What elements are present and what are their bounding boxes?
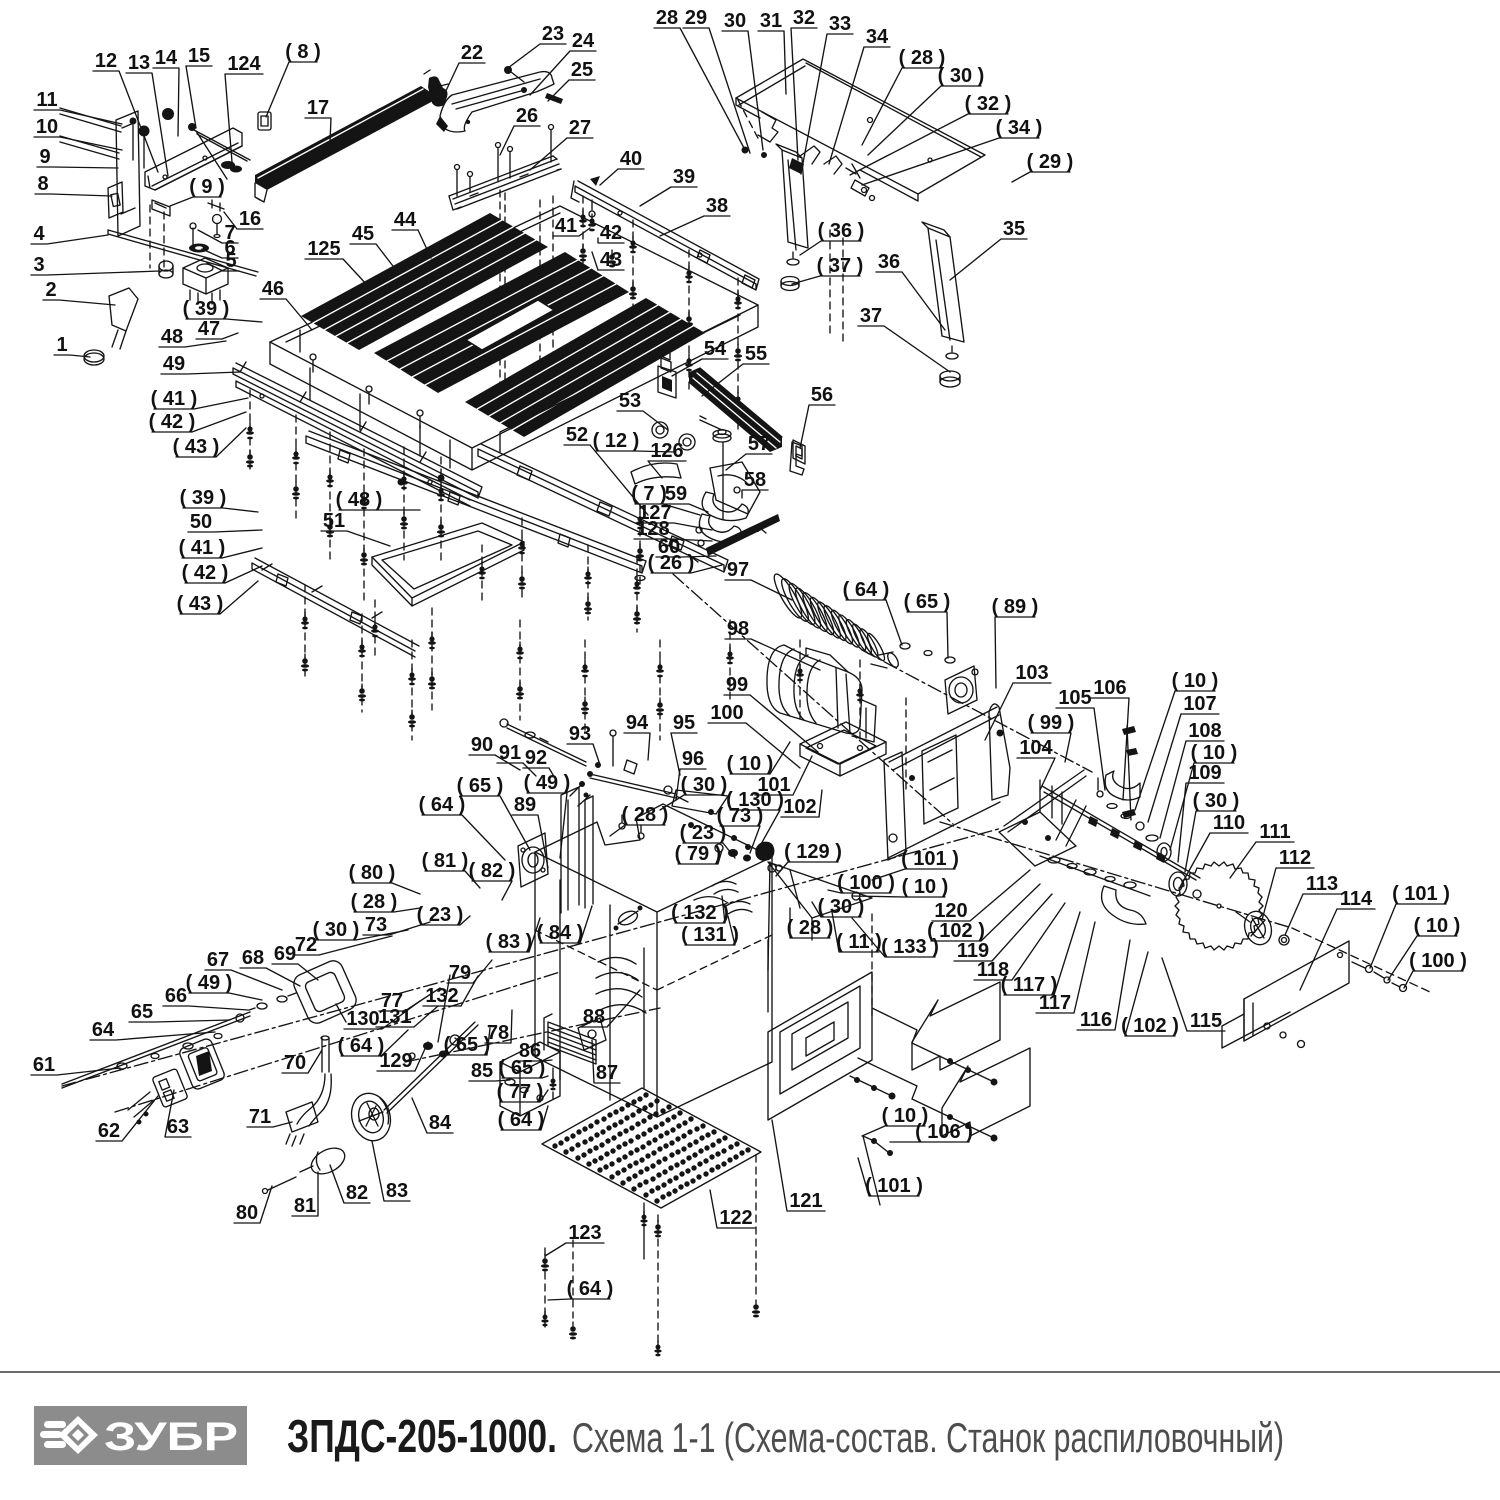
svg-text:105: 105	[1058, 687, 1091, 709]
svg-text:90: 90	[471, 734, 493, 756]
svg-text:35: 35	[1003, 218, 1025, 240]
svg-text:10: 10	[36, 116, 58, 138]
svg-text:( 106 ): ( 106 )	[915, 1121, 973, 1143]
svg-text:( 10 ): ( 10 )	[727, 753, 774, 775]
svg-text:( 64 ): ( 64 )	[498, 1109, 545, 1131]
svg-text:( 36 ): ( 36 )	[818, 220, 865, 242]
svg-text:( 39 ): ( 39 )	[183, 298, 230, 320]
svg-text:67: 67	[207, 949, 229, 971]
svg-text:26: 26	[516, 105, 538, 127]
svg-text:24: 24	[572, 30, 595, 52]
svg-text:64: 64	[92, 1019, 115, 1041]
svg-text:31: 31	[760, 10, 782, 32]
svg-text:( 30 ): ( 30 )	[681, 774, 728, 796]
svg-text:34: 34	[866, 26, 889, 48]
svg-text:( 41 ): ( 41 )	[151, 388, 198, 410]
svg-text:( 82 ): ( 82 )	[469, 860, 516, 882]
svg-text:( 10 ): ( 10 )	[1414, 915, 1461, 937]
svg-text:( 100 ): ( 100 )	[1409, 950, 1467, 972]
svg-text:110: 110	[1213, 812, 1245, 834]
svg-text:( 30 ): ( 30 )	[1193, 790, 1240, 812]
svg-text:87: 87	[596, 1062, 618, 1084]
svg-text:121: 121	[789, 1190, 822, 1212]
svg-text:113: 113	[1306, 873, 1338, 895]
svg-text:46: 46	[262, 278, 284, 300]
svg-text:( 12 ): ( 12 )	[593, 430, 640, 452]
svg-text:5: 5	[225, 250, 236, 272]
svg-text:69: 69	[274, 943, 296, 965]
svg-text:97: 97	[727, 559, 749, 581]
svg-text:ЗУБР: ЗУБР	[104, 1415, 238, 1459]
svg-text:125: 125	[307, 238, 340, 260]
svg-text:42: 42	[600, 222, 622, 244]
svg-text:126: 126	[650, 440, 683, 462]
svg-text:( 26 ): ( 26 )	[648, 552, 695, 574]
svg-text:( 83 ): ( 83 )	[486, 931, 533, 953]
svg-text:( 11 ): ( 11 )	[836, 931, 882, 953]
svg-text:53: 53	[619, 390, 641, 412]
svg-text:( 10 ): ( 10 )	[902, 876, 949, 898]
svg-text:( 80 ): ( 80 )	[349, 862, 396, 884]
svg-text:107: 107	[1183, 693, 1216, 715]
svg-text:17: 17	[307, 97, 329, 119]
svg-text:( 65 ): ( 65 )	[444, 1034, 491, 1056]
svg-text:70: 70	[284, 1052, 306, 1074]
svg-text:( 65 ): ( 65 )	[904, 591, 951, 613]
svg-text:36: 36	[878, 251, 900, 273]
svg-text:81: 81	[294, 1195, 316, 1217]
svg-text:( 129 ): ( 129 )	[784, 841, 842, 863]
svg-text:62: 62	[98, 1120, 120, 1142]
svg-text:( 101 ): ( 101 )	[865, 1175, 923, 1197]
svg-text:15: 15	[188, 45, 210, 67]
svg-text:120: 120	[934, 900, 967, 922]
svg-text:51: 51	[323, 510, 345, 532]
svg-text:( 43 ): ( 43 )	[177, 593, 224, 615]
svg-text:( 41 ): ( 41 )	[179, 537, 226, 559]
svg-text:( 29 ): ( 29 )	[1027, 151, 1074, 173]
svg-text:11: 11	[36, 89, 57, 111]
svg-text:94: 94	[626, 712, 649, 734]
svg-text:2: 2	[45, 279, 56, 301]
svg-text:95: 95	[673, 712, 695, 734]
svg-text:65: 65	[131, 1001, 153, 1023]
svg-text:( 132 ): ( 132 )	[671, 902, 729, 924]
svg-text:13: 13	[128, 52, 150, 74]
svg-text:( 89 ): ( 89 )	[992, 596, 1039, 618]
svg-text:116: 116	[1080, 1009, 1112, 1031]
svg-text:50: 50	[190, 511, 212, 533]
svg-text:( 101 ): ( 101 )	[1392, 883, 1450, 905]
svg-text:112: 112	[1279, 847, 1311, 869]
svg-text:8: 8	[37, 173, 48, 195]
svg-text:44: 44	[394, 209, 417, 231]
svg-text:30: 30	[724, 10, 746, 32]
svg-text:3: 3	[33, 254, 44, 276]
svg-text:( 30 ): ( 30 )	[313, 919, 360, 941]
svg-text:57: 57	[748, 433, 770, 455]
svg-text:124: 124	[227, 53, 261, 75]
svg-text:( 34 ): ( 34 )	[996, 117, 1043, 139]
svg-text:( 65 ): ( 65 )	[499, 1057, 546, 1079]
svg-text:( 79 ): ( 79 )	[675, 843, 722, 865]
svg-text:( 37 ): ( 37 )	[817, 255, 864, 277]
svg-text:29: 29	[685, 7, 707, 29]
svg-text:12: 12	[95, 50, 117, 72]
svg-text:52: 52	[566, 424, 588, 446]
svg-text:45: 45	[352, 223, 374, 245]
svg-text:( 23 ): ( 23 )	[680, 822, 727, 844]
svg-text:82: 82	[346, 1182, 368, 1204]
svg-text:58: 58	[744, 469, 766, 491]
svg-text:104: 104	[1019, 737, 1053, 759]
svg-text:38: 38	[706, 195, 728, 217]
svg-text:( 28 ): ( 28 )	[622, 804, 669, 826]
svg-text:99: 99	[726, 674, 748, 696]
svg-text:89: 89	[514, 794, 536, 816]
svg-text:91: 91	[499, 742, 521, 764]
svg-text:85: 85	[471, 1060, 493, 1082]
svg-text:56: 56	[811, 384, 833, 406]
svg-text:( 28 ): ( 28 )	[351, 891, 398, 913]
svg-text:ЗПДС-205-1000.: ЗПДС-205-1000.	[287, 1410, 557, 1462]
svg-text:( 39 ): ( 39 )	[180, 487, 227, 509]
svg-text:16: 16	[239, 208, 261, 230]
svg-text:( 9 ): ( 9 )	[189, 176, 225, 198]
svg-text:( 49 ): ( 49 )	[186, 972, 233, 994]
svg-text:( 81 ): ( 81 )	[422, 850, 469, 872]
svg-text:83: 83	[386, 1180, 408, 1202]
svg-text:66: 66	[165, 985, 187, 1007]
svg-text:( 23 ): ( 23 )	[417, 904, 464, 926]
svg-text:( 64 ): ( 64 )	[338, 1035, 385, 1057]
svg-text:84: 84	[429, 1112, 452, 1134]
svg-text:106: 106	[1093, 677, 1126, 699]
svg-text:117: 117	[1039, 992, 1071, 1014]
svg-text:71: 71	[249, 1106, 271, 1128]
svg-text:28: 28	[656, 7, 678, 29]
svg-text:( 30 ): ( 30 )	[938, 65, 985, 87]
svg-text:103: 103	[1015, 662, 1048, 684]
svg-text:111: 111	[1259, 821, 1290, 843]
svg-text:131: 131	[378, 1006, 411, 1028]
svg-text:78: 78	[487, 1022, 509, 1044]
svg-text:54: 54	[704, 338, 727, 360]
svg-text:( 101 ): ( 101 )	[901, 848, 959, 870]
svg-text:92: 92	[525, 747, 547, 769]
svg-text:33: 33	[829, 13, 851, 35]
svg-text:22: 22	[461, 42, 483, 64]
svg-text:123: 123	[568, 1222, 601, 1244]
svg-text:108: 108	[1188, 720, 1221, 742]
svg-text:102: 102	[783, 796, 816, 818]
svg-text:96: 96	[682, 748, 704, 770]
svg-text:115: 115	[1190, 1010, 1222, 1032]
svg-text:( 48 ): ( 48 )	[336, 489, 383, 511]
svg-text:( 64 ): ( 64 )	[843, 579, 890, 601]
svg-text:( 102 ): ( 102 )	[927, 920, 985, 942]
svg-text:( 30 ): ( 30 )	[818, 896, 865, 918]
svg-text:( 42 ): ( 42 )	[182, 562, 229, 584]
svg-text:98: 98	[727, 618, 749, 640]
svg-text:109: 109	[1188, 762, 1221, 784]
svg-text:37: 37	[860, 305, 882, 327]
svg-text:9: 9	[39, 146, 50, 168]
svg-text:41: 41	[555, 215, 577, 237]
svg-text:4: 4	[33, 223, 45, 245]
svg-text:130: 130	[346, 1008, 379, 1030]
svg-text:49: 49	[163, 353, 185, 375]
svg-text:55: 55	[745, 343, 767, 365]
svg-text:( 32 ): ( 32 )	[965, 93, 1012, 115]
svg-text:63: 63	[167, 1116, 189, 1138]
svg-text:( 28 ): ( 28 )	[787, 917, 834, 939]
svg-text:40: 40	[620, 148, 642, 170]
svg-text:132: 132	[425, 985, 458, 1007]
svg-text:79: 79	[449, 962, 471, 984]
svg-text:72: 72	[295, 934, 317, 956]
svg-text:114: 114	[1340, 888, 1373, 910]
svg-text:68: 68	[242, 947, 264, 969]
svg-text:( 99 ): ( 99 )	[1028, 712, 1075, 734]
svg-text:100: 100	[710, 702, 743, 724]
svg-text:43: 43	[600, 249, 622, 271]
svg-text:( 64 ): ( 64 )	[419, 794, 466, 816]
svg-text:( 49 ): ( 49 )	[524, 772, 571, 794]
svg-text:73: 73	[365, 914, 387, 936]
svg-text:27: 27	[569, 117, 591, 139]
svg-text:39: 39	[673, 166, 695, 188]
svg-text:93: 93	[569, 723, 591, 745]
svg-text:48: 48	[161, 326, 183, 348]
svg-text:61: 61	[33, 1054, 55, 1076]
svg-text:1: 1	[56, 334, 67, 356]
svg-text:( 77 ): ( 77 )	[497, 1081, 544, 1103]
svg-text:( 10 ): ( 10 )	[1172, 670, 1219, 692]
svg-text:Схема 1-1 (Схема-состав. Стано: Схема 1-1 (Схема-состав. Станок распилов…	[572, 1414, 1284, 1461]
svg-text:( 64 ): ( 64 )	[567, 1278, 614, 1300]
svg-text:23: 23	[542, 23, 564, 45]
svg-text:( 42 ): ( 42 )	[149, 411, 196, 433]
svg-text:( 84 ): ( 84 )	[537, 922, 584, 944]
svg-text:47: 47	[198, 318, 220, 340]
svg-text:122: 122	[719, 1207, 752, 1229]
svg-text:129: 129	[379, 1050, 412, 1072]
svg-text:( 43 ): ( 43 )	[173, 436, 220, 458]
svg-text:25: 25	[571, 59, 593, 81]
svg-text:32: 32	[793, 7, 815, 29]
svg-text:14: 14	[155, 47, 178, 69]
svg-text:80: 80	[236, 1202, 258, 1224]
svg-text:( 8 ): ( 8 )	[285, 41, 321, 63]
svg-text:88: 88	[583, 1006, 605, 1028]
svg-text:( 10 ): ( 10 )	[1191, 742, 1238, 764]
